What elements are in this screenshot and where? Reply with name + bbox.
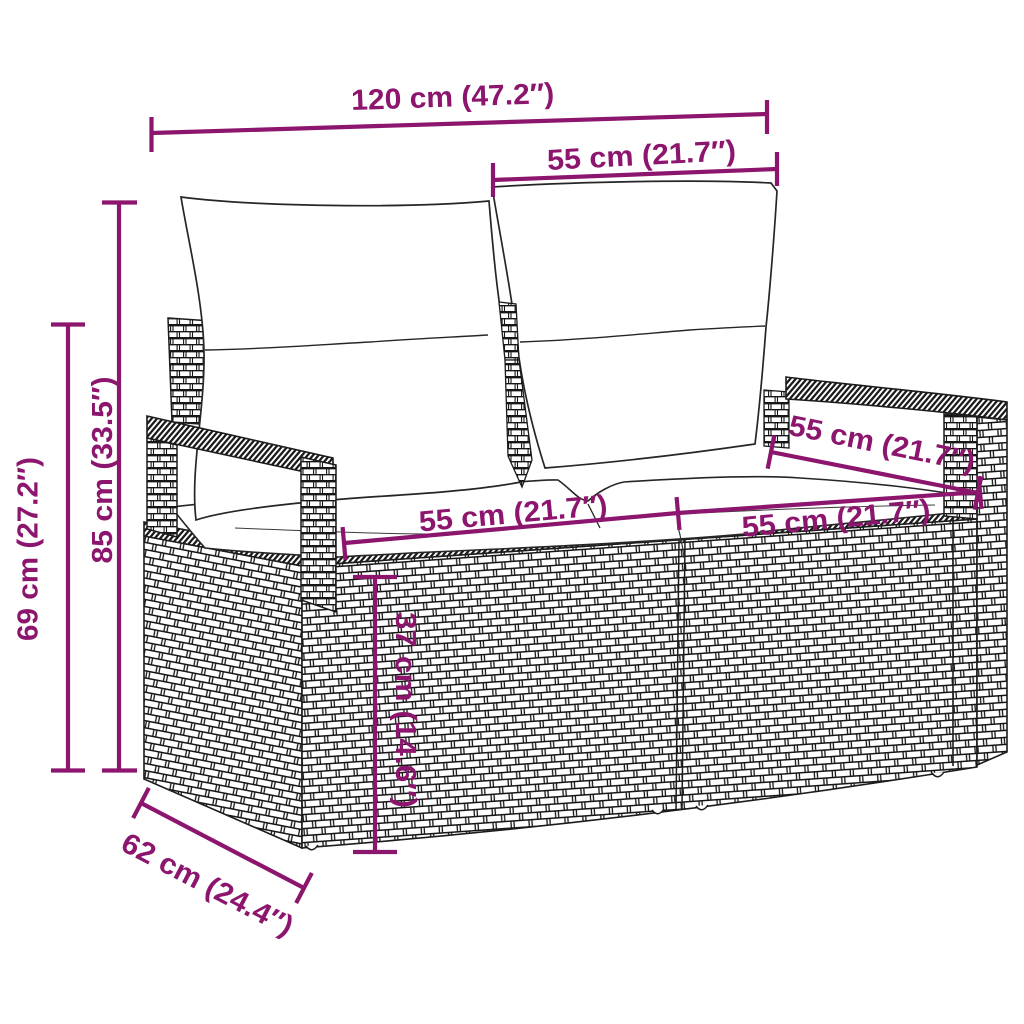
svg-text:85 cm (33.5″): 85 cm (33.5″) [87,377,119,564]
svg-text:37 cm (14.6″): 37 cm (14.6″) [389,612,421,808]
svg-text:69 cm (27.2″): 69 cm (27.2″) [13,457,45,641]
